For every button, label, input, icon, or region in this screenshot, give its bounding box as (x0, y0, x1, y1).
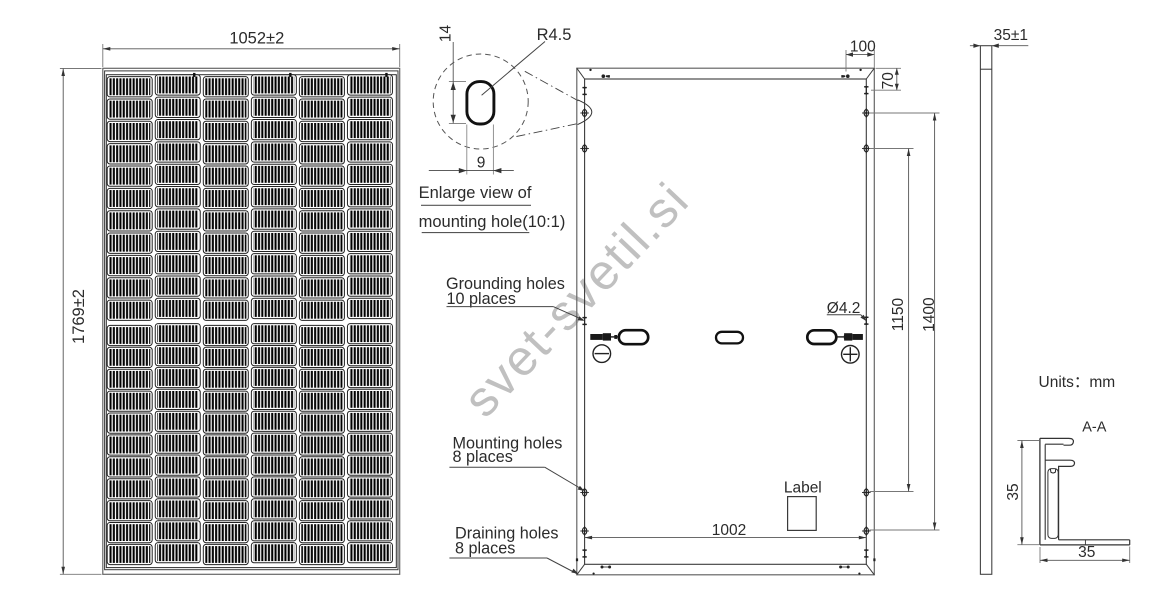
svg-text:35±1: 35±1 (994, 27, 1028, 44)
svg-text:9: 9 (477, 155, 486, 172)
svg-text:A-A: A-A (1082, 420, 1107, 436)
svg-text:Enlarge view of: Enlarge view of (419, 184, 532, 202)
svg-text:mounting hole(10:1): mounting hole(10:1) (419, 213, 566, 231)
svg-text:8 places: 8 places (455, 539, 515, 557)
svg-text:10 places: 10 places (447, 290, 516, 308)
svg-text:1052±2: 1052±2 (229, 30, 284, 48)
svg-text:14: 14 (438, 25, 455, 43)
svg-text:1002: 1002 (712, 522, 746, 539)
svg-text:Label: Label (784, 479, 822, 496)
svg-text:8 places: 8 places (453, 448, 513, 466)
svg-text:70: 70 (880, 72, 897, 90)
svg-text:35: 35 (1078, 544, 1095, 561)
svg-text:1150: 1150 (890, 298, 907, 332)
svg-text:1769±2: 1769±2 (70, 289, 88, 344)
svg-text:100: 100 (850, 39, 876, 56)
svg-text:Units：mm: Units：mm (1039, 374, 1116, 391)
svg-text:35: 35 (1005, 483, 1022, 500)
svg-text:R4.5: R4.5 (537, 26, 572, 44)
svg-text:1400: 1400 (921, 297, 938, 332)
